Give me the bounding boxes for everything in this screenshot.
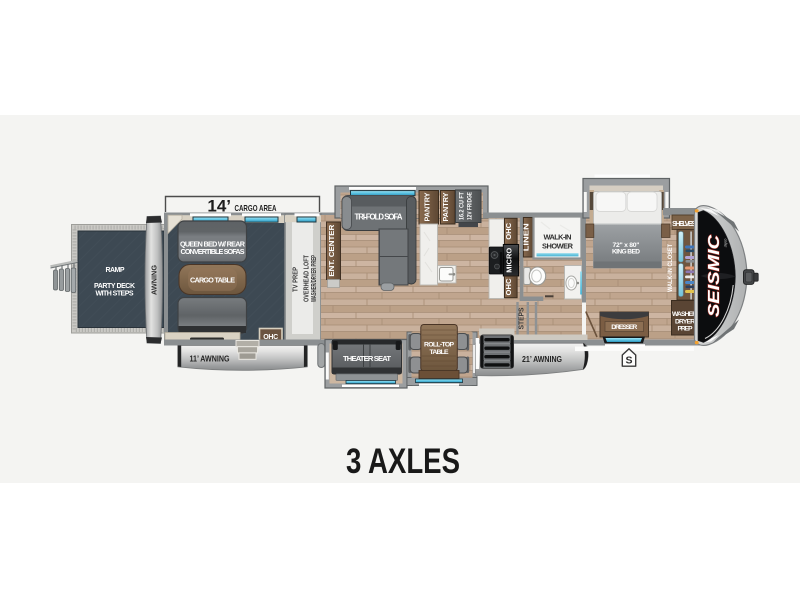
svg-text:CARGO AREA: CARGO AREA: [235, 203, 277, 213]
svg-text:DRESSER: DRESSER: [611, 324, 637, 331]
svg-text:CARGO TABLE: CARGO TABLE: [190, 276, 235, 285]
svg-text:TABLE: TABLE: [430, 349, 449, 356]
svg-text:21’ AWNING: 21’ AWNING: [522, 355, 562, 364]
svg-text:KING BED: KING BED: [612, 249, 640, 256]
svg-text:THEATER SEAT: THEATER SEAT: [343, 354, 391, 363]
svg-text:WALK-IN CLOSET: WALK-IN CLOSET: [667, 243, 674, 292]
svg-text:PANTRY: PANTRY: [441, 192, 450, 221]
svg-text:ENT. CENTER: ENT. CENTER: [327, 224, 336, 277]
svg-text:RAMP: RAMP: [106, 267, 125, 274]
svg-text:TV PREP: TV PREP: [293, 267, 300, 292]
svg-text:TRI-FOLD SOFA: TRI-FOLD SOFA: [355, 213, 403, 222]
svg-text:Jayco: Jayco: [724, 238, 728, 248]
svg-text:OVERHEAD LOFT: OVERHEAD LOFT: [304, 254, 311, 302]
svg-text:OHC: OHC: [506, 223, 513, 240]
svg-text:LINEN: LINEN: [522, 223, 531, 251]
svg-text:CONVERTIBLE SOFAS: CONVERTIBLE SOFAS: [181, 247, 245, 256]
svg-text:16.2 CU FT: 16.2 CU FT: [459, 192, 466, 220]
svg-text:STEPS: STEPS: [519, 307, 526, 329]
svg-text:SHELVES: SHELVES: [672, 219, 696, 228]
svg-text:SEISMIC: SEISMIC: [706, 234, 723, 317]
svg-text:PANTRY: PANTRY: [423, 192, 432, 221]
svg-text:DRYER: DRYER: [675, 318, 695, 325]
svg-text:PARTY DECK: PARTY DECK: [94, 283, 135, 290]
svg-text:PREP: PREP: [678, 326, 694, 333]
svg-text:3 AXLES: 3 AXLES: [346, 441, 460, 481]
svg-text:SHOWER: SHOWER: [542, 242, 574, 251]
svg-text:WASHER/DRYER PREP: WASHER/DRYER PREP: [311, 255, 318, 302]
svg-text:WALK-IN: WALK-IN: [544, 233, 572, 242]
svg-text:12V FRIDGE: 12V FRIDGE: [467, 192, 474, 220]
svg-text:AWNING: AWNING: [150, 265, 159, 295]
svg-text:MICRO: MICRO: [507, 247, 514, 273]
svg-text:ROLL-TOP: ROLL-TOP: [424, 342, 454, 349]
svg-text:WITH STEPS: WITH STEPS: [96, 290, 134, 297]
svg-text:11’ AWNING: 11’ AWNING: [190, 355, 230, 364]
svg-text:S: S: [625, 354, 632, 366]
svg-text:OHC: OHC: [506, 279, 513, 296]
